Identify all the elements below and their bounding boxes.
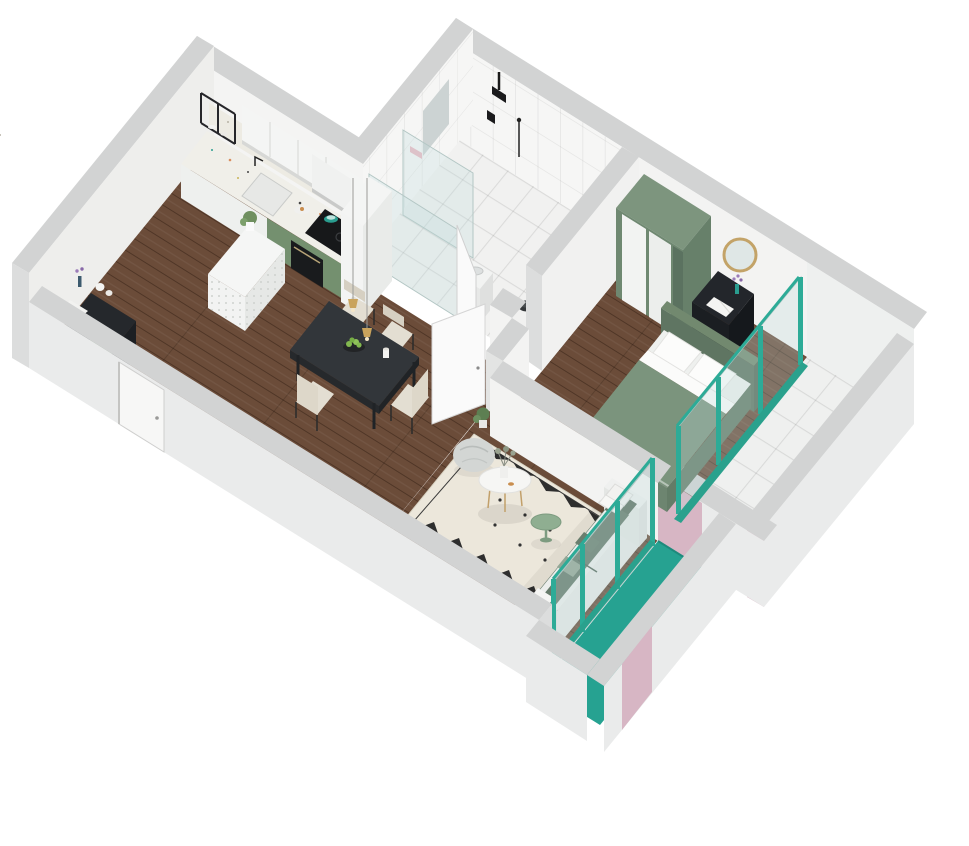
bean-bag-body xyxy=(453,438,495,472)
handheld-shower-head xyxy=(517,118,521,122)
window-frame-post xyxy=(650,458,655,546)
dried-plant-head xyxy=(495,448,501,454)
shelf-dish xyxy=(221,132,228,136)
pastry xyxy=(300,207,304,211)
door-handle xyxy=(476,366,479,369)
flower-vase xyxy=(735,284,739,294)
dried-plant-head xyxy=(503,446,509,452)
window-frame-post xyxy=(580,544,585,632)
table-vase xyxy=(500,466,508,478)
pendant-bulb xyxy=(365,337,369,341)
apple xyxy=(349,337,354,342)
dried-plant-head xyxy=(510,450,515,455)
window-frame-post xyxy=(758,326,763,414)
flower xyxy=(736,274,739,277)
left-wall-end xyxy=(12,263,29,368)
flower xyxy=(732,277,735,280)
apple xyxy=(356,342,361,347)
floor-plan-canvas xyxy=(0,0,969,846)
side-table-base xyxy=(540,538,552,543)
round-mirror xyxy=(724,239,756,271)
shelf-dish xyxy=(208,125,216,129)
candle-cup-top xyxy=(383,348,389,351)
window-frame-post xyxy=(716,377,721,465)
window-frame-post xyxy=(676,426,681,514)
wardrobe-door-left xyxy=(622,214,646,315)
plant-pot xyxy=(479,420,487,428)
isometric-floor-plan xyxy=(0,0,969,846)
deco-plate xyxy=(106,290,113,296)
window-frame-post xyxy=(615,501,620,589)
deco-plate xyxy=(96,283,105,291)
plant-pot xyxy=(246,222,254,231)
pot-lid xyxy=(327,215,336,219)
entry-vase xyxy=(78,276,82,287)
side-table-top xyxy=(531,514,561,530)
window-frame-post xyxy=(798,277,803,365)
pendant-bulb xyxy=(351,308,355,312)
cup xyxy=(508,482,514,486)
entry-flower xyxy=(80,267,83,270)
flower xyxy=(739,278,742,281)
entry-door-knob xyxy=(155,416,159,420)
bedroom-door xyxy=(432,304,485,424)
entry-flower xyxy=(75,269,78,272)
